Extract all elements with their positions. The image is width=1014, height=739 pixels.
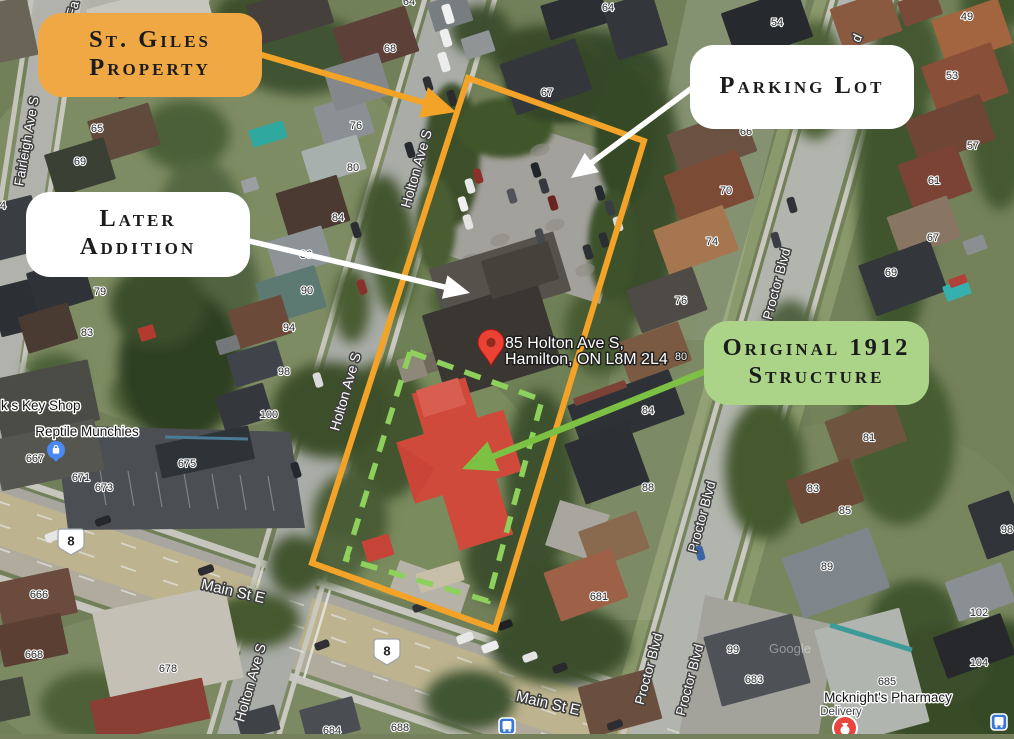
svg-text:61: 61 [928, 175, 940, 187]
svg-text:54: 54 [771, 17, 783, 29]
svg-text:80: 80 [675, 351, 687, 363]
svg-text:666: 666 [30, 589, 48, 601]
svg-text:99: 99 [727, 644, 739, 656]
svg-text:76: 76 [675, 295, 687, 307]
svg-text:8: 8 [383, 644, 390, 659]
svg-text:80: 80 [347, 162, 359, 174]
svg-text:Structure: Structure [748, 362, 884, 389]
svg-text:4: 4 [0, 200, 6, 212]
svg-text:St. Giles: St. Giles [89, 26, 211, 53]
svg-text:69: 69 [74, 156, 86, 168]
svg-text:67: 67 [927, 232, 939, 244]
svg-text:85: 85 [839, 505, 851, 517]
svg-text:Later: Later [99, 205, 176, 232]
svg-text:Reptile Munchies: Reptile Munchies [35, 424, 139, 439]
svg-text:685: 685 [878, 676, 896, 688]
svg-text:673: 673 [95, 482, 113, 494]
svg-text:678: 678 [159, 663, 177, 675]
svg-text:Hamilton, ON L8M 2L4: Hamilton, ON L8M 2L4 [505, 351, 668, 368]
svg-text:70: 70 [720, 185, 732, 197]
svg-text:65: 65 [91, 123, 103, 135]
svg-text:74: 74 [706, 236, 718, 248]
svg-text:68: 68 [384, 43, 396, 55]
svg-text:89: 89 [821, 561, 833, 573]
svg-text:76: 76 [350, 120, 362, 132]
svg-text:Original 1912: Original 1912 [723, 334, 911, 361]
svg-text:84: 84 [332, 212, 344, 224]
svg-text:8: 8 [67, 534, 74, 549]
svg-text:668: 668 [25, 649, 43, 661]
svg-text:683: 683 [745, 674, 763, 686]
svg-text:102: 102 [970, 607, 988, 619]
svg-text:79: 79 [94, 286, 106, 298]
svg-text:688: 688 [391, 722, 409, 734]
svg-text:53: 53 [946, 70, 958, 82]
svg-text:64: 64 [403, 0, 415, 8]
svg-text:Addition: Addition [80, 233, 196, 260]
svg-text:Google: Google [769, 641, 811, 656]
svg-text:88: 88 [642, 482, 654, 494]
svg-text:67: 67 [541, 87, 553, 99]
svg-text:84: 84 [642, 405, 654, 417]
svg-text:100: 100 [260, 409, 278, 421]
svg-text:Mcknight's Pharmacy: Mcknight's Pharmacy [824, 690, 952, 705]
svg-text:64: 64 [602, 2, 614, 14]
svg-text:Parking Lot: Parking Lot [720, 72, 885, 99]
svg-text:k s Key Shop: k s Key Shop [1, 398, 81, 413]
svg-text:671: 671 [72, 472, 90, 484]
svg-text:85 Holton Ave S,: 85 Holton Ave S, [505, 335, 624, 352]
svg-text:81: 81 [863, 432, 875, 444]
svg-text:684: 684 [323, 725, 341, 734]
svg-text:675: 675 [178, 458, 196, 470]
svg-text:69: 69 [885, 267, 897, 279]
svg-text:83: 83 [81, 327, 93, 339]
svg-text:57: 57 [967, 140, 979, 152]
svg-text:667: 667 [26, 453, 44, 465]
svg-text:104: 104 [970, 657, 988, 669]
svg-text:98: 98 [278, 366, 290, 378]
svg-text:Property: Property [89, 54, 210, 81]
svg-text:83: 83 [807, 483, 819, 495]
svg-text:94: 94 [283, 322, 295, 334]
svg-text:49: 49 [961, 11, 973, 23]
svg-text:98: 98 [1001, 524, 1013, 536]
svg-text:681: 681 [590, 591, 608, 603]
svg-text:90: 90 [301, 285, 313, 297]
